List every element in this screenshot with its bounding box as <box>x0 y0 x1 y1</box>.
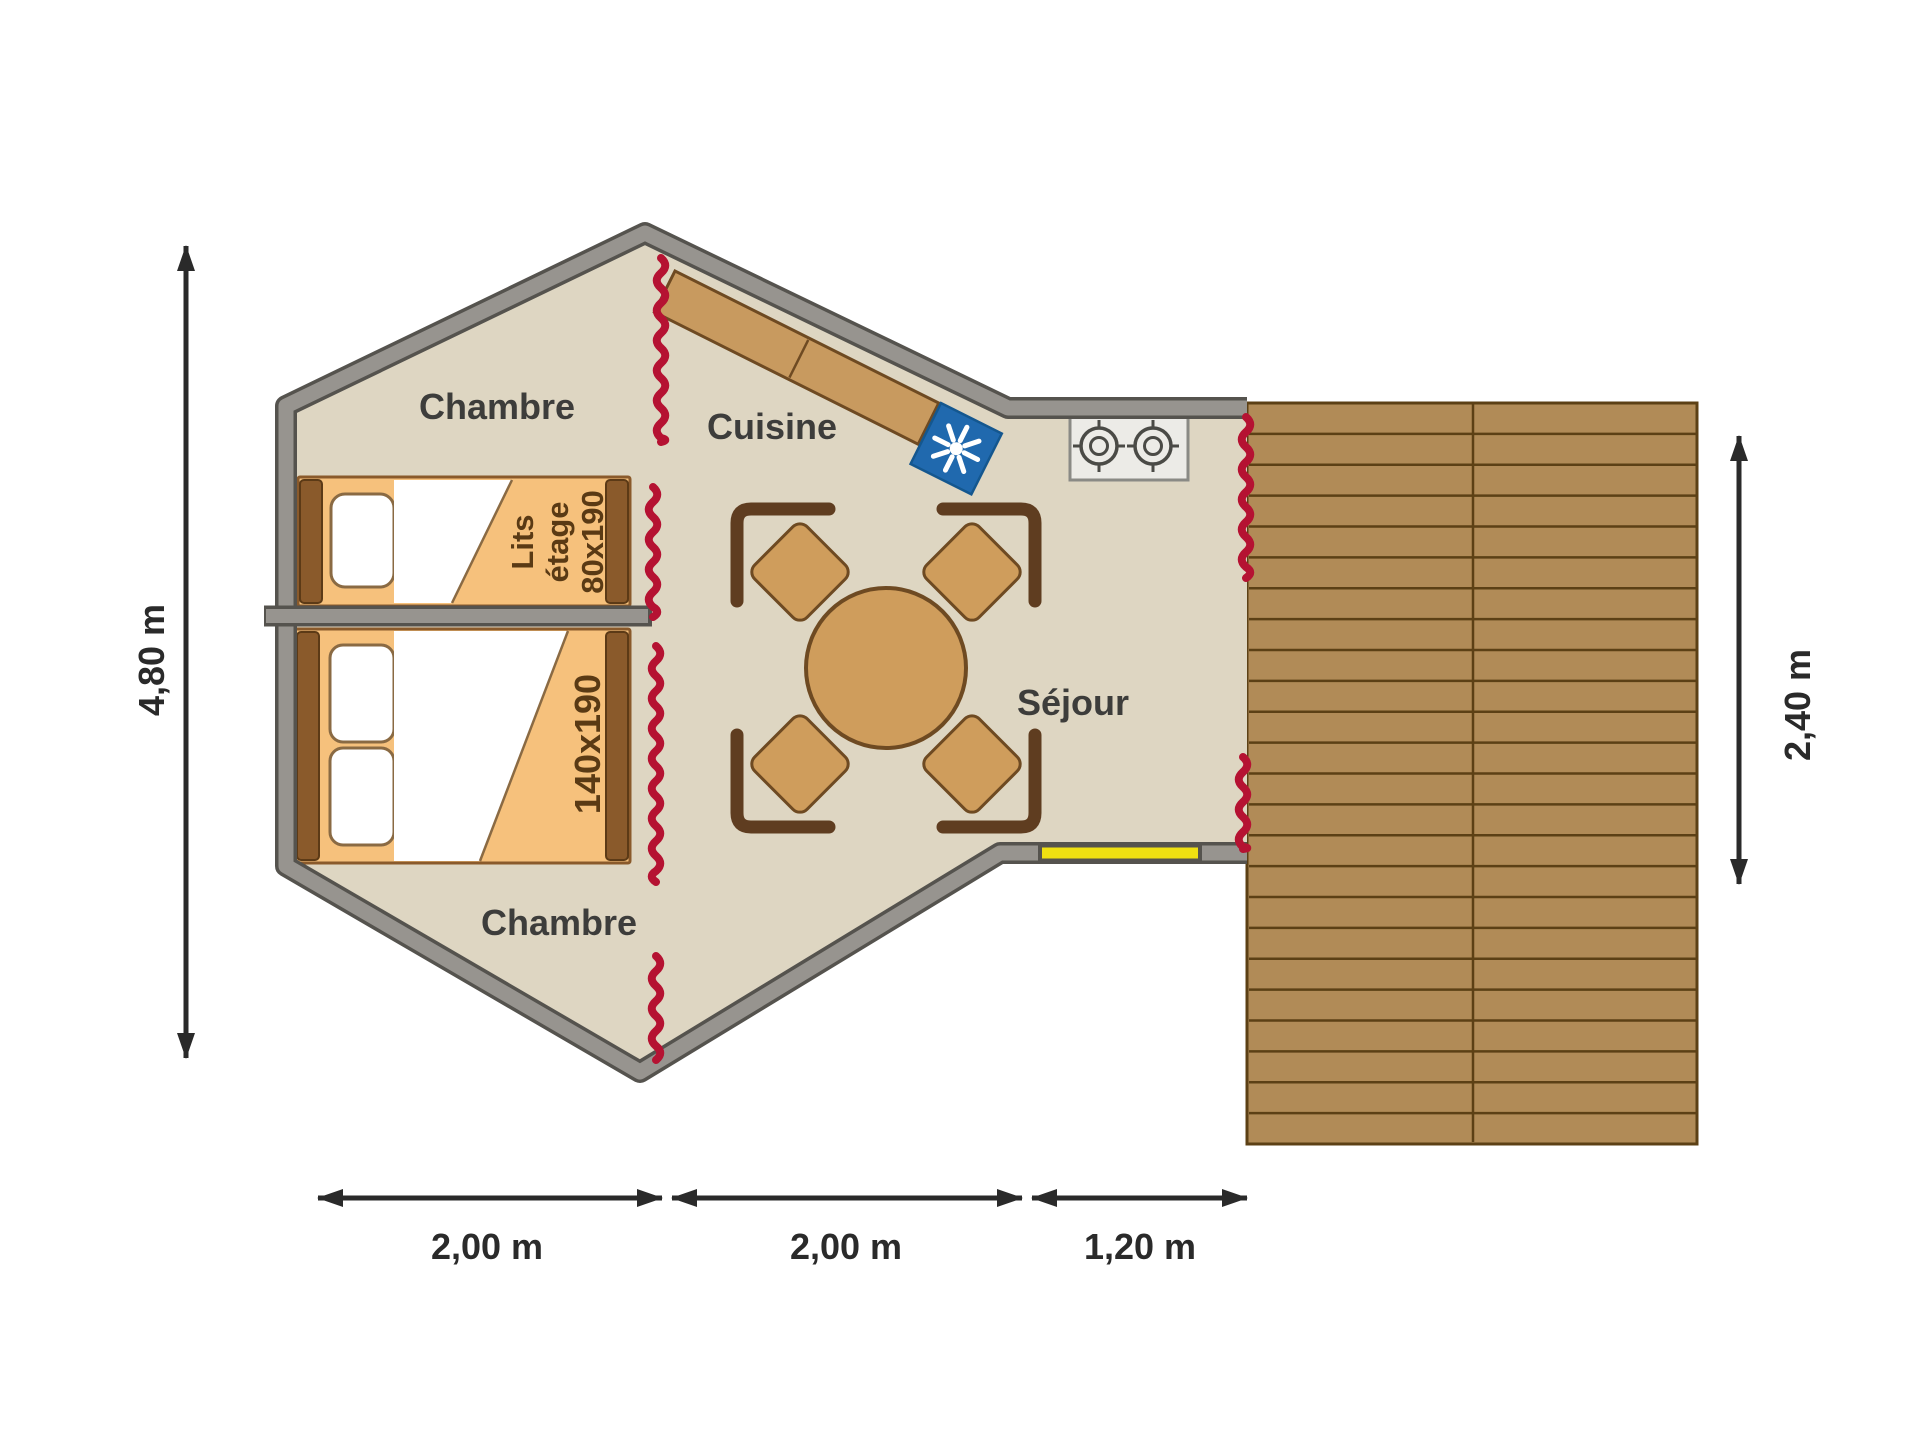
room-label-kitchen: Cuisine <box>707 406 837 447</box>
room-label-bedroom-bottom: Chambre <box>481 902 637 943</box>
dimension-label-terrace: 2,40 m <box>1777 649 1818 761</box>
double-bed-headboard <box>297 632 319 860</box>
stove <box>1070 411 1188 480</box>
double-bed-pillow-1 <box>330 645 394 742</box>
bunk-bed-label-line2: étage <box>540 502 575 583</box>
floor-plan-page: Lits étage 80x190 140x190 <box>0 0 1920 1440</box>
bunk-bed-label-line3: 80x190 <box>575 490 610 593</box>
bunk-bed-pillow <box>331 494 394 587</box>
dimension-label-living: 2,00 m <box>790 1226 902 1267</box>
dimension-label-entry: 1,20 m <box>1084 1226 1196 1267</box>
round-table <box>806 588 966 748</box>
double-bed: 140x190 <box>295 629 630 863</box>
bunk-bed: Lits étage 80x190 <box>298 477 630 606</box>
double-bed-pillow-2 <box>330 748 394 845</box>
double-bed-label: 140x190 <box>567 674 608 814</box>
double-bed-footboard <box>606 632 628 860</box>
room-label-living: Séjour <box>1017 682 1129 723</box>
bunk-bed-headboard <box>300 480 322 603</box>
dimension-label-height: 4,80 m <box>131 604 172 716</box>
dimension-label-bedrooms: 2,00 m <box>431 1226 543 1267</box>
floor-plan-canvas: Lits étage 80x190 140x190 <box>0 0 1920 1440</box>
terrace-deck <box>1247 403 1697 1144</box>
bunk-bed-label-line1: Lits <box>505 514 540 569</box>
room-label-bedroom-top: Chambre <box>419 386 575 427</box>
